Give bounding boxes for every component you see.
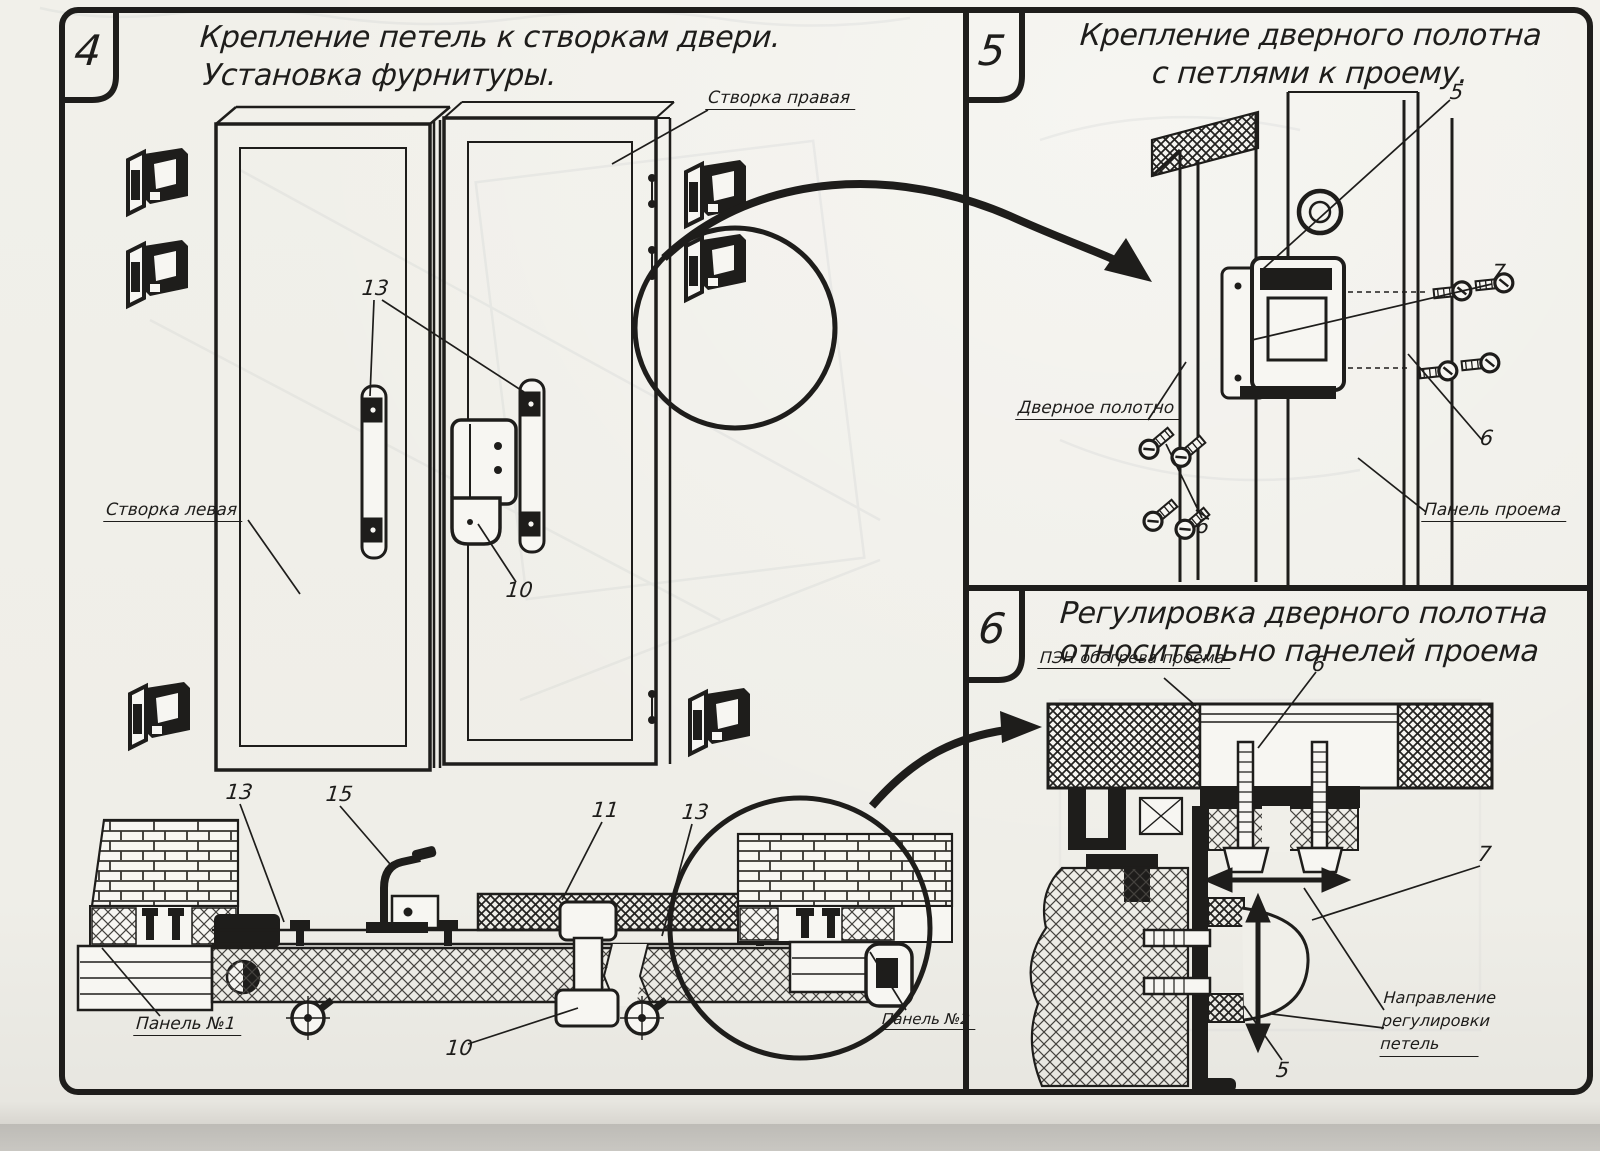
callout-10-bottom-lock: 10 (445, 1036, 474, 1060)
label-panel-no1: Панель №1 (133, 1014, 242, 1036)
door-lock (452, 420, 516, 544)
callout-15-hook: 15 (325, 782, 354, 806)
callout-10-door-lock: 10 (505, 578, 534, 602)
scanned-assembly-drawing: { "colors": { "paper": "#f0efe9", "ink":… (0, 0, 1600, 1151)
panel5-title-line2: с петлями к проему. (1079, 56, 1541, 91)
callout-13-section-right: 13 (681, 800, 710, 824)
brick-wall-left (92, 820, 238, 906)
horizontal-adjust-arrow (1204, 868, 1350, 892)
callout-13-hinge-plates: 13 (361, 276, 390, 300)
label-right-leaf: Створка правая (705, 88, 857, 110)
detail-arrow-to-panel6 (872, 711, 1042, 806)
brick-wall-right (738, 834, 952, 906)
panel4-number: 4 (61, 26, 114, 75)
label-adjustment-direction-line1: Направление регулировки (1381, 988, 1496, 1030)
panel5-number: 5 (965, 26, 1018, 75)
label-opening-panel: Панель проема (1421, 500, 1568, 522)
callout-13-section-left: 13 (225, 780, 254, 804)
callout-6-screws-right: 6 (1479, 426, 1495, 450)
panel6-title-line1: Регулировка дверного полотна (1059, 596, 1531, 631)
meeting-stiles (434, 120, 440, 768)
hinge-plate-left-stile (362, 386, 386, 558)
label-door-leaf: Дверное полотно (1015, 398, 1181, 420)
label-heater: ПЭН обогрева проема (1037, 648, 1231, 669)
callout-5-hinge-plate: 5 (1275, 1058, 1291, 1082)
label-adjustment-direction-line2: петель (1380, 1032, 1481, 1056)
callout-11-bottom-latch: 11 (591, 798, 620, 822)
handle-hole (1299, 191, 1341, 233)
insulation-right (738, 906, 952, 942)
panel4-door-leaves (216, 102, 674, 770)
panel4-bottom-section (78, 820, 952, 1040)
left-door-leaf (216, 107, 450, 770)
label-adjustment-direction: Направление регулировки петель (1380, 986, 1600, 1057)
technical-drawing (0, 0, 1600, 1151)
panel6-number: 6 (965, 604, 1018, 653)
panel4-title-line2: Установка фурнитуры. (202, 58, 558, 93)
callout-6-adjusting-bolts: 6 (1311, 652, 1327, 676)
hinge-plate-right-stile (520, 380, 544, 552)
stile-screws (649, 175, 655, 723)
panel4-title-line1: Крепление петель к створкам двери. (199, 20, 782, 55)
label-left-leaf: Створка левая (103, 500, 244, 522)
callout-7-hinge-body: 7 (1477, 842, 1493, 866)
panel5-title-line1: Крепление дверного полотна (1079, 18, 1541, 53)
callout-7-hinge-bracket: 7 (1491, 260, 1507, 284)
label-panel-no2: Панель №2 (879, 1010, 976, 1030)
callout-5-hinge: 5 (1449, 80, 1465, 104)
sandwich-insulation (212, 948, 868, 1002)
callout-6-screws-left: 6 (1195, 514, 1211, 538)
hinge-assembly (1222, 258, 1426, 399)
